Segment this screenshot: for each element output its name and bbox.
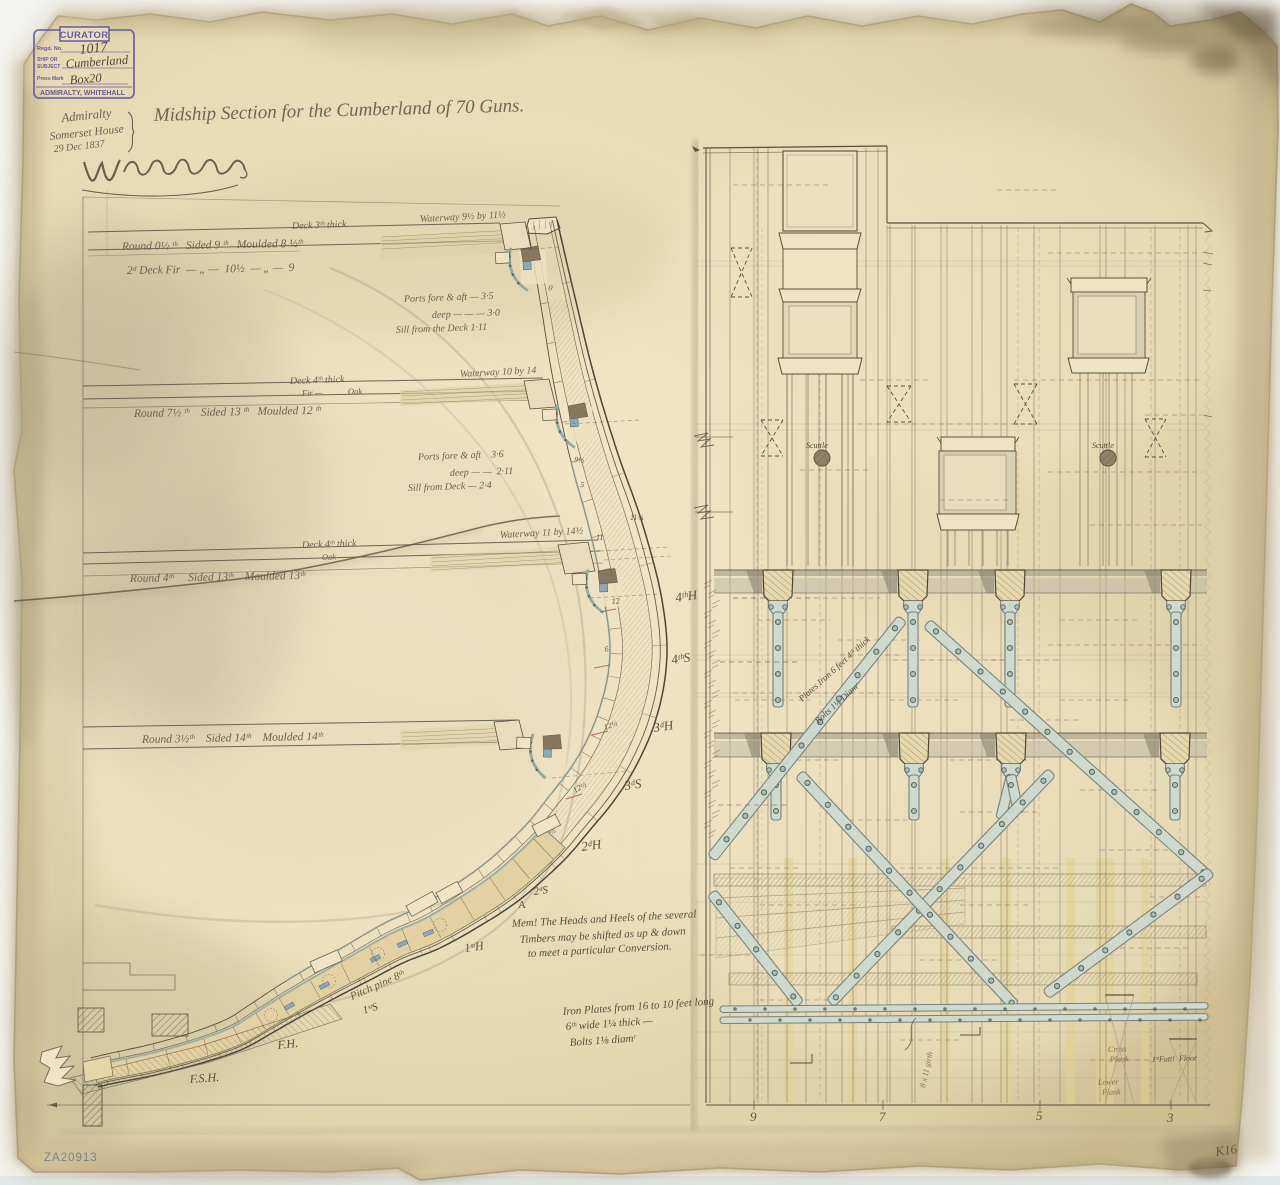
svg-text:1ˢᵗFutt! Floor: 1ˢᵗFutt! Floor bbox=[1152, 1053, 1198, 1064]
svg-text:Plank: Plank bbox=[1101, 1087, 1121, 1097]
svg-text:SHIP OR: SHIP OR bbox=[37, 57, 58, 63]
svg-text:Deck 4ᵗʰ thick: Deck 4ᵗʰ thick bbox=[301, 538, 357, 551]
svg-text:2ᵈS: 2ᵈS bbox=[533, 884, 549, 898]
svg-text:5: 5 bbox=[580, 480, 585, 489]
svg-text:deep — — 2·11: deep — — 2·11 bbox=[450, 466, 514, 479]
svg-text:3ᵈS: 3ᵈS bbox=[622, 776, 642, 793]
svg-text:Scuttle: Scuttle bbox=[1092, 441, 1114, 450]
svg-text:ADMIRALTY, WHITEHALL: ADMIRALTY, WHITEHALL bbox=[40, 90, 126, 97]
svg-text:K16: K16 bbox=[1213, 1141, 1238, 1159]
svg-text:11¾: 11¾ bbox=[630, 513, 643, 522]
svg-text:SUBJECT: SUBJECT bbox=[37, 64, 60, 70]
svg-text:9: 9 bbox=[750, 1109, 757, 1124]
svg-text:ZA20913: ZA20913 bbox=[44, 1152, 98, 1164]
svg-text:Press Mark: Press Mark bbox=[37, 76, 64, 82]
svg-text:Box20: Box20 bbox=[69, 71, 103, 87]
svg-text:Regd. No.: Regd. No. bbox=[37, 46, 63, 52]
svg-text:CURATOR: CURATOR bbox=[60, 30, 109, 41]
svg-text:5: 5 bbox=[1036, 1108, 1043, 1123]
svg-text:4ᵗʰH: 4ᵗʰH bbox=[674, 587, 698, 605]
svg-text:1ˢᵗH: 1ˢᵗH bbox=[463, 938, 485, 955]
svg-text:F.S.H.: F.S.H. bbox=[188, 1070, 219, 1086]
svg-text:A: A bbox=[518, 899, 526, 911]
svg-text:12: 12 bbox=[611, 596, 620, 606]
svg-text:Scuttle: Scuttle bbox=[806, 441, 828, 450]
svg-text:Cross: Cross bbox=[1108, 1044, 1127, 1054]
svg-text:7: 7 bbox=[879, 1109, 886, 1124]
svg-text:Deck 3ᵗʰ thick: Deck 3ᵗʰ thick bbox=[291, 219, 347, 232]
svg-text:3: 3 bbox=[1166, 1110, 1174, 1125]
svg-text:Deck 4ᵗʰ thick: Deck 4ᵗʰ thick bbox=[289, 374, 345, 387]
svg-text:2ᵈH: 2ᵈH bbox=[580, 836, 602, 854]
svg-text:Plank: Plank bbox=[1109, 1054, 1129, 1064]
svg-text:Oak —: Oak — bbox=[322, 551, 347, 562]
svg-text:3ᵈH: 3ᵈH bbox=[651, 717, 674, 735]
svg-text:9½: 9½ bbox=[574, 455, 585, 465]
svg-text:11: 11 bbox=[596, 533, 603, 542]
svg-text:Lower: Lower bbox=[1097, 1077, 1120, 1087]
svg-text:4ᵗʰS: 4ᵗʰS bbox=[670, 649, 691, 667]
svg-text:Fir — Oak: Fir — Oak bbox=[301, 386, 363, 398]
